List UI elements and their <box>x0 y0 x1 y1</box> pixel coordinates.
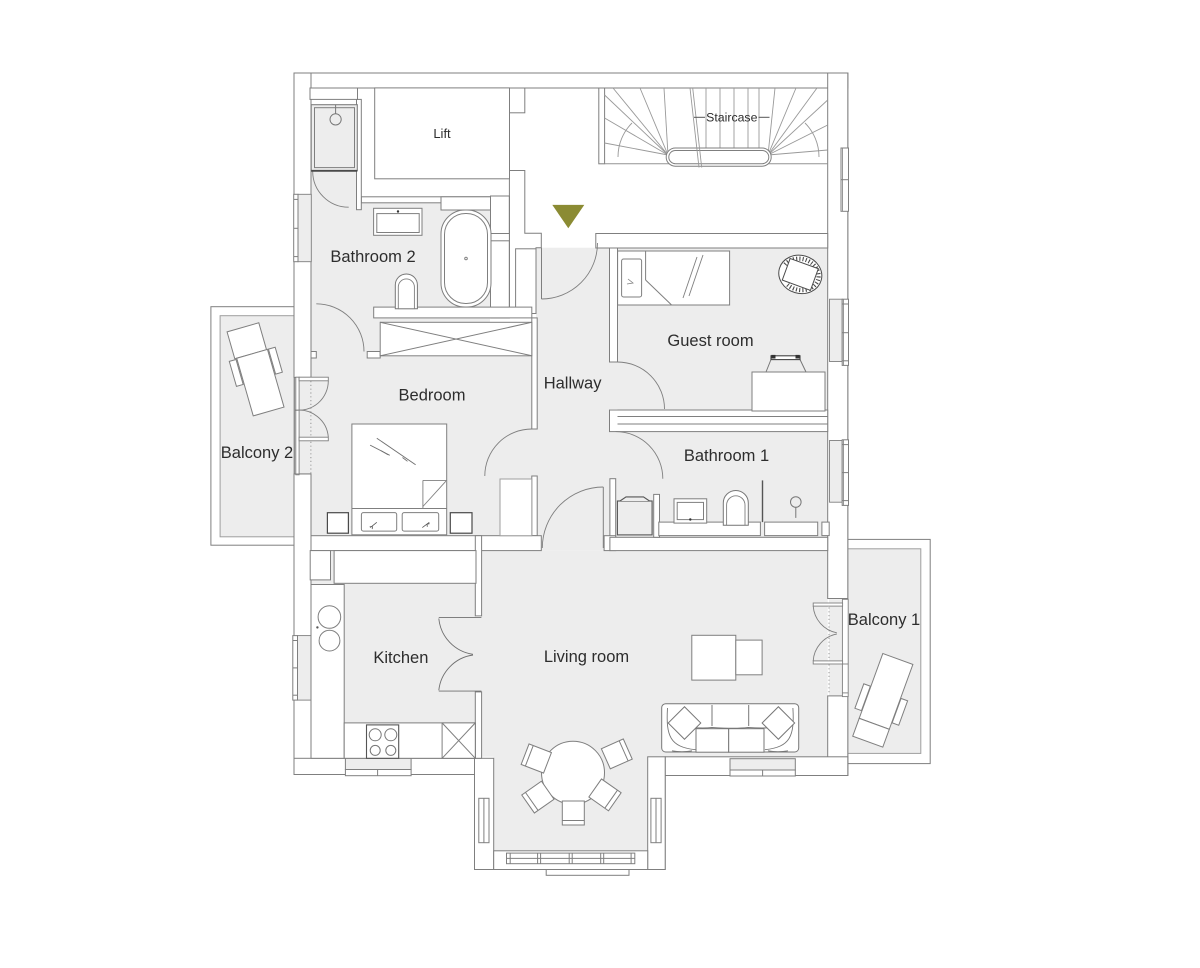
svg-text:Balcony 1: Balcony 1 <box>848 611 920 629</box>
svg-text:Balcony 2: Balcony 2 <box>221 444 293 462</box>
svg-text:Bedroom: Bedroom <box>399 387 466 405</box>
svg-text:Bathroom 1: Bathroom 1 <box>684 447 769 465</box>
svg-text:Hallway: Hallway <box>544 375 603 393</box>
svg-text:Lift: Lift <box>433 126 451 141</box>
svg-text:Bathroom 2: Bathroom 2 <box>330 248 415 266</box>
svg-text:Staircase: Staircase <box>706 111 757 125</box>
svg-text:Guest room: Guest room <box>667 332 753 350</box>
svg-text:Kitchen: Kitchen <box>373 649 428 667</box>
svg-text:Living room: Living room <box>544 648 629 666</box>
